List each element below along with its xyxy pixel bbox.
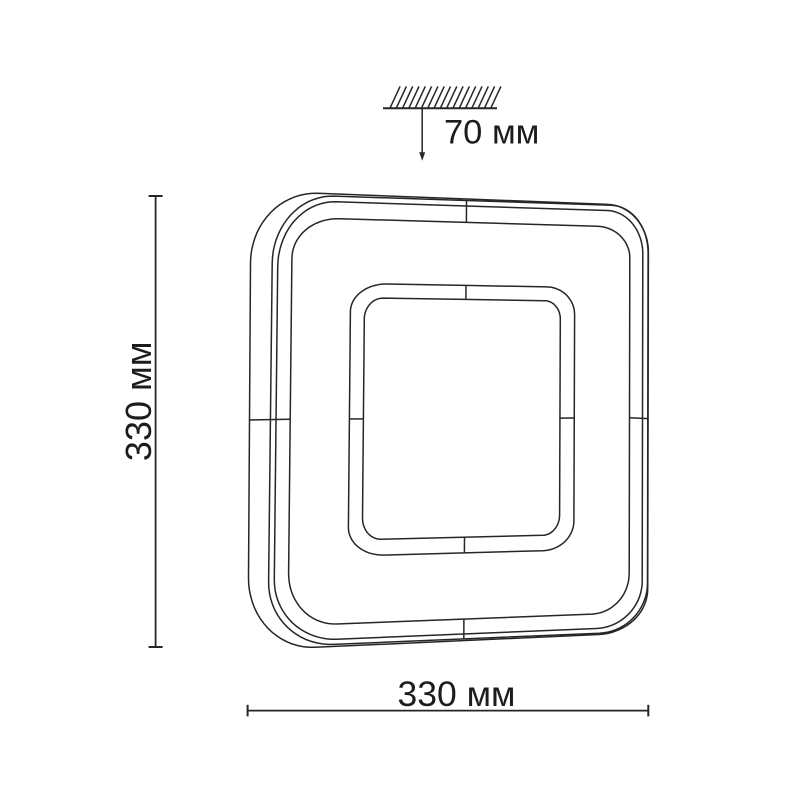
- svg-text:70 мм: 70 мм: [444, 114, 539, 152]
- svg-text:330 мм: 330 мм: [398, 674, 516, 714]
- svg-text:330 мм: 330 мм: [118, 342, 159, 462]
